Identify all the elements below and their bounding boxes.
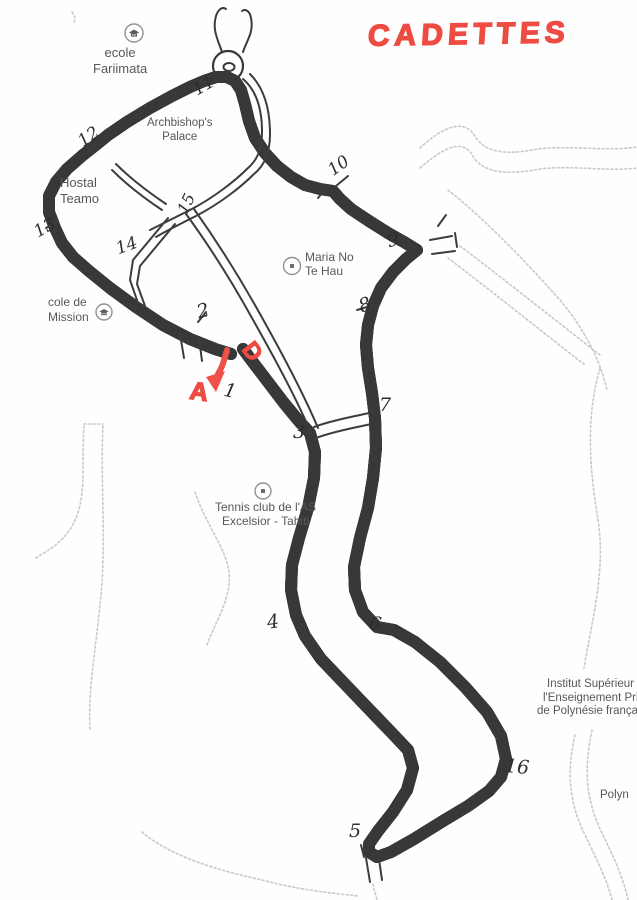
school-icon	[96, 304, 112, 320]
label-maria-no-te-hau: Maria No Te Hau	[305, 250, 354, 278]
course-title: CADETTES	[367, 16, 571, 54]
course-road	[49, 77, 506, 857]
church-icon	[284, 258, 301, 275]
checkpoint-16: 16	[504, 755, 530, 779]
label-ecole-mission: cole de Mission	[48, 295, 89, 325]
label-polynesie: Polyn	[600, 788, 629, 802]
checkpoint-3: 3	[293, 421, 305, 443]
course-route	[49, 77, 506, 857]
label-ecole-fariimata: ecole Fariimata	[93, 45, 147, 77]
label-institut: Institut Supérieur l'Enseignement Privé …	[545, 678, 637, 719]
label-archbishops-palace: Archbishop's Palace	[147, 116, 212, 144]
checkpoint-5: 5	[349, 820, 361, 842]
scanned-course-map: { "title": { "text": "CADETTES", "color"…	[0, 0, 637, 900]
school-icon	[125, 24, 143, 42]
checkpoint-7: 7	[379, 394, 391, 416]
map-canvas: CADETTES D A ecole Fariimata Archbishop'…	[0, 0, 637, 900]
faint-background-roads	[36, 12, 637, 900]
tennis-club-icon	[255, 483, 271, 499]
course-road-outline	[49, 77, 506, 857]
label-hostal-teamo: Hostal Teamo	[60, 175, 99, 207]
label-tennis-club: Tennis club de l'AS Excelsior - Tahiti	[215, 500, 316, 528]
